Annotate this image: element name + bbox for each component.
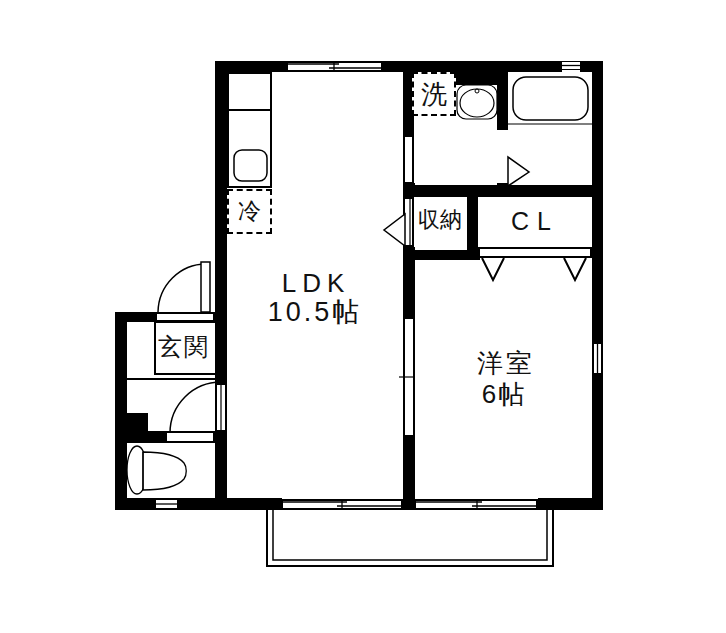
toilet [127, 446, 186, 494]
closet-front [478, 247, 592, 258]
wall-segment [115, 312, 127, 508]
kitchen-counter [227, 72, 272, 188]
room-sliding-door [403, 317, 415, 437]
wall-segment [592, 61, 603, 510]
wall-segment [403, 185, 603, 197]
room-label-ldk-size: 10.5帖 [235, 296, 395, 328]
window-toilet [155, 499, 178, 509]
wall-segment [115, 312, 157, 322]
room-label-entrance: 玄関 [144, 332, 224, 362]
floor-plan: 洗 冷 収納 CL LDK 10.5帖 玄関 洋室 6帖 [0, 0, 726, 633]
counter-divider [228, 109, 271, 111]
window-western-room [593, 343, 602, 374]
wall-segment [497, 85, 508, 130]
bathtub [508, 77, 592, 124]
washroom-sliding-door [403, 135, 414, 184]
entrance-edge-line [127, 378, 217, 380]
room-label-western-size: 6帖 [444, 379, 564, 409]
wall-segment [403, 250, 480, 260]
wall-segment [215, 431, 227, 500]
window-balcony-right [414, 499, 538, 510]
room-label-storage: 収納 [409, 206, 471, 234]
wall-segment [538, 498, 603, 510]
toilet-door [165, 431, 215, 443]
entry-step [127, 413, 148, 433]
room-label-fridge: 冷 [227, 189, 272, 234]
bathroom-door-triangle [508, 157, 529, 186]
room-label-washer: 洗 [412, 72, 456, 116]
storage-door-triangle [384, 214, 405, 246]
window-bathroom [561, 61, 581, 70]
room-label-western: 洋室 [446, 348, 566, 378]
wall-segment [455, 61, 508, 85]
balcony [267, 509, 553, 566]
wash-basin [457, 85, 497, 119]
hall-door-swing [170, 382, 221, 433]
window-balcony-left [281, 499, 403, 510]
closet-bifold-doors [482, 258, 586, 280]
front-door-swing [158, 262, 210, 312]
wall-segment [115, 498, 282, 510]
room-label-closet: CL [495, 207, 575, 235]
hall-door-leaf [215, 383, 227, 432]
window-ldk-top [286, 61, 383, 72]
